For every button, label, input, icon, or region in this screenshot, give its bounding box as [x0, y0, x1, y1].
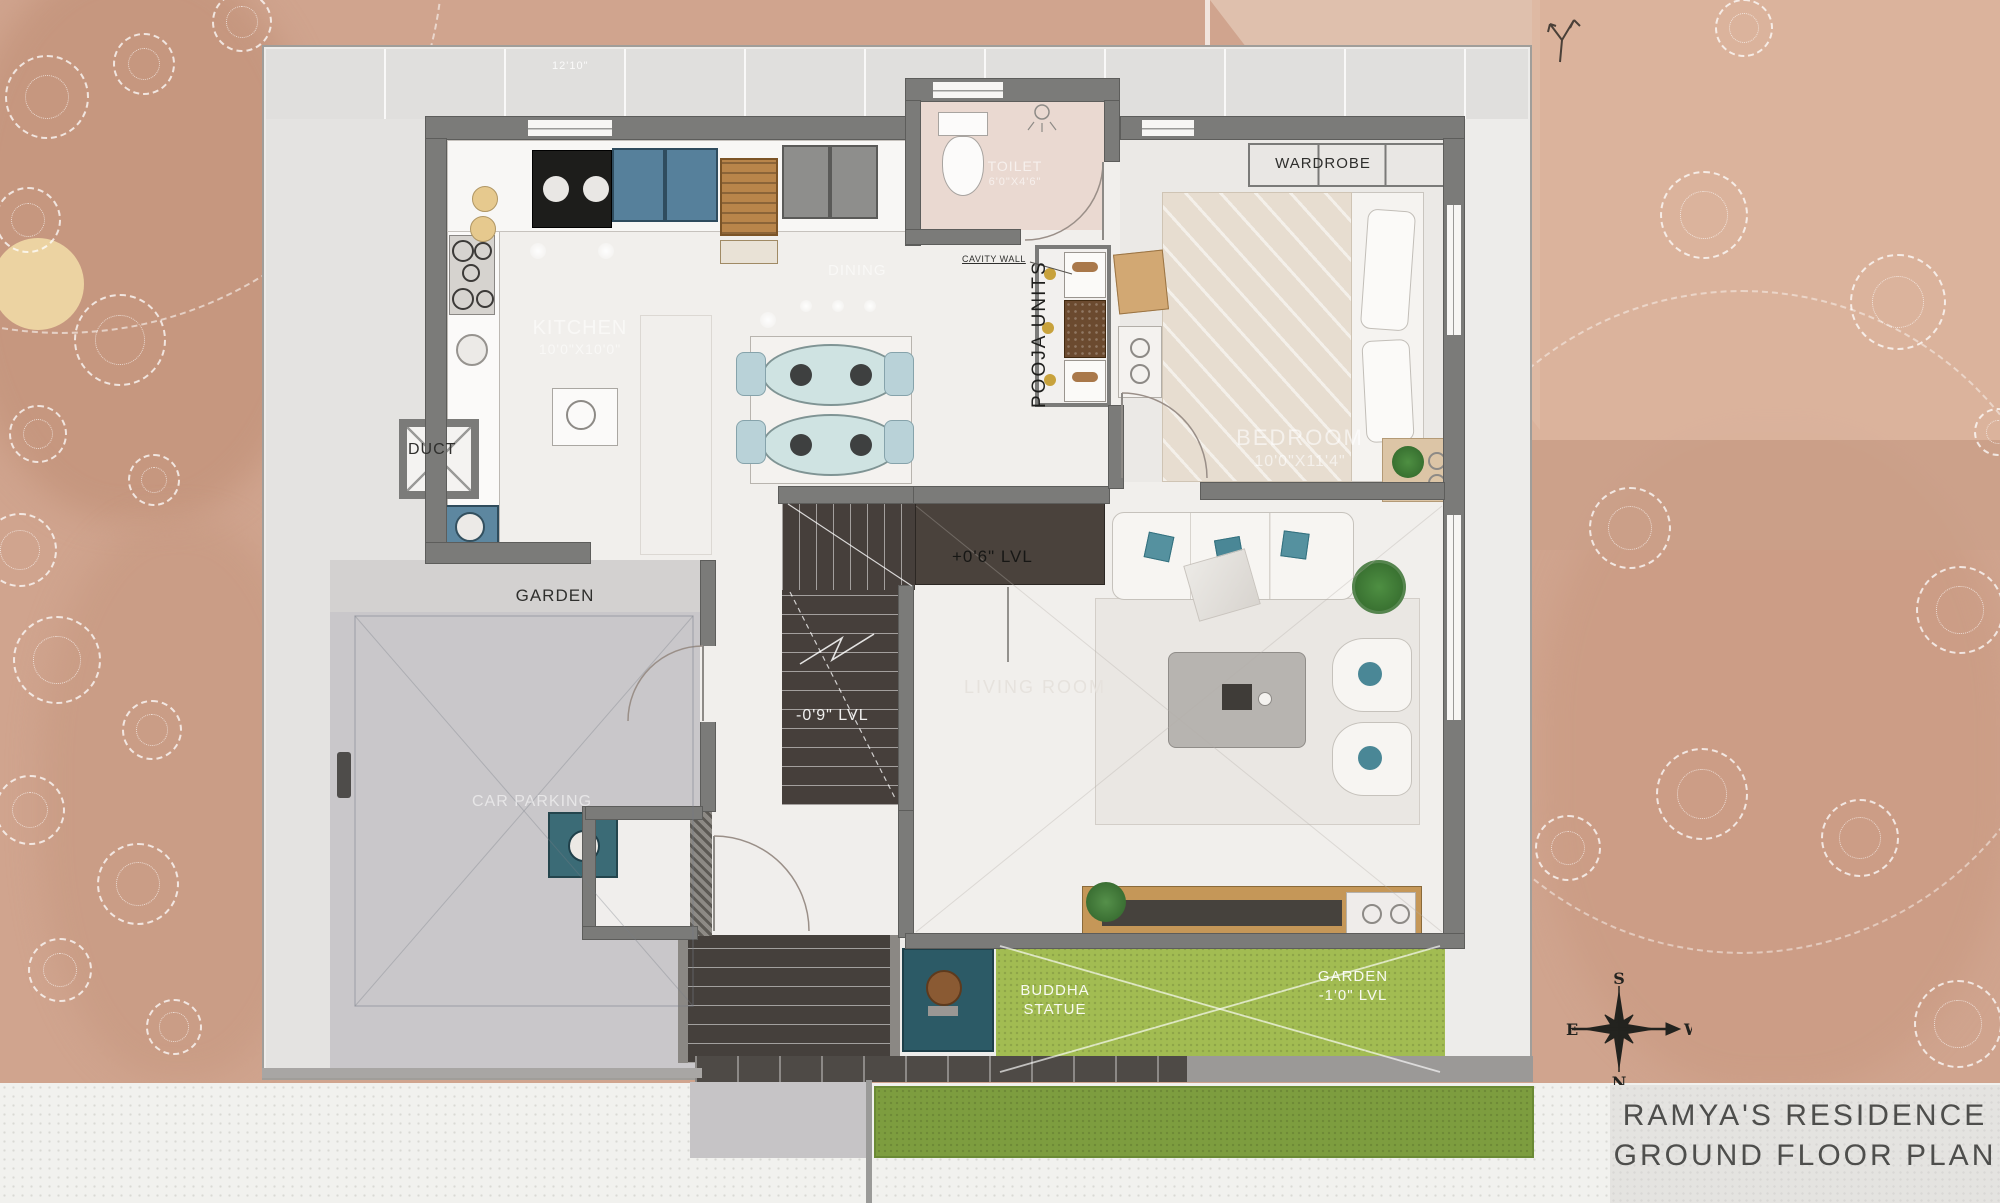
dining-chair [884, 352, 914, 396]
tree-sketch [122, 700, 182, 760]
wall-porch-south [582, 926, 698, 940]
tree-sketch [9, 405, 67, 463]
coffee-table-cup [1258, 692, 1272, 706]
stairs-landing [915, 500, 1105, 585]
stove-burner [452, 288, 474, 310]
wall-kitchen-north [425, 116, 907, 140]
compound-bottom-wall [262, 1068, 702, 1078]
pooja-side-knob [1130, 338, 1150, 358]
gate-post-line [866, 1080, 872, 1203]
tree-sketch [1589, 487, 1671, 569]
tree-sketch [13, 616, 101, 704]
wall-porch-west [582, 806, 596, 940]
kitchen-sink-round [456, 334, 488, 366]
cabinet-gray [782, 145, 878, 219]
tree-sketch [1821, 799, 1899, 877]
compass-east: E [1566, 1020, 1578, 1039]
stove-burner [476, 290, 494, 308]
window-bedroom-north [1142, 120, 1194, 136]
ceiling-light [760, 312, 776, 328]
door-gap-stair [700, 646, 716, 722]
wall-living-south [905, 933, 1465, 949]
entry-steps-rail [890, 935, 900, 1063]
console-device-knob [1390, 904, 1410, 924]
buddha-statue-label: BUDDHA STATUE [1000, 982, 1110, 1020]
tv-unit [1102, 900, 1342, 926]
toilet-dims: 6'0"X4'6" [955, 176, 1075, 190]
wall-toilet-east [1104, 100, 1120, 162]
tree-sketch [1535, 815, 1601, 881]
tree-sketch [74, 294, 166, 386]
stove-burner [474, 242, 492, 260]
level-plus-label: +0'6" LVL [952, 546, 1033, 567]
entry-steps [678, 935, 900, 1063]
kitchen-dims: 10'0"X10'0" [500, 341, 660, 359]
dining-glass-table [762, 414, 900, 476]
dining-plate [790, 364, 812, 386]
compass-south: S [1613, 972, 1625, 988]
buddha-statue [926, 970, 962, 1006]
bedroom-name: BEDROOM [1200, 424, 1400, 452]
wall-living-west [898, 585, 914, 813]
dining-plate [850, 364, 872, 386]
front-gate-band [695, 1056, 1187, 1082]
wall-foyer-east [898, 810, 914, 938]
armchair-pillow [1358, 662, 1382, 686]
pooja-side-panel [1118, 326, 1162, 398]
washer-door [455, 512, 485, 542]
shoe-rack-hatch [690, 808, 712, 936]
kitchen-decor-items [450, 158, 470, 178]
wall-toilet-west [905, 100, 921, 246]
pooja-shelf-top-handle [1072, 262, 1098, 272]
wall-kitchen-south [425, 542, 591, 564]
duct-label: DUCT [408, 440, 456, 460]
tree-sketch [1850, 254, 1946, 350]
bed-pillow [1360, 208, 1416, 331]
title-line1: RAMYA'S RESIDENCE [1610, 1099, 2000, 1133]
coffee-table-item [1222, 684, 1252, 710]
tree-sketch [1660, 171, 1748, 259]
kitchen-decor-plate [472, 186, 498, 212]
wash-basin [566, 400, 596, 430]
garden-left-label: GARDEN [500, 585, 610, 606]
entry-steps-rail [678, 935, 688, 1063]
dining-plate [850, 434, 872, 456]
toilet-label: TOILET 6'0"X4'6" [955, 158, 1075, 189]
pooja-shelf-top [1064, 252, 1106, 298]
cabinet-crate-wood [720, 158, 778, 236]
dining-chair [736, 352, 766, 396]
compass-west: W [1683, 1020, 1692, 1039]
tree-sketch [28, 938, 92, 1002]
ceiling-light [530, 243, 546, 259]
pendant-light [864, 300, 876, 312]
buddha-base [928, 1006, 958, 1016]
wall-bedroom-south [1200, 482, 1445, 500]
pooja-shelf-bottom-handle [1072, 372, 1098, 382]
wall-kitchen-west [425, 138, 447, 562]
cabinet-blue [612, 148, 718, 222]
site-white-line [1205, 0, 1210, 46]
kitchen-label: KITCHEN 10'0"X10'0" [500, 316, 660, 359]
tree-sketch [128, 454, 180, 506]
top-dimension-text: 12'10" [552, 60, 588, 74]
foyer-floor [596, 820, 898, 935]
window-east-bedroom [1447, 205, 1461, 335]
compass-rose: S W N E [1562, 972, 1692, 1092]
front-apron [690, 1082, 868, 1158]
armchair-pillow [1358, 746, 1382, 770]
tree-sketch [5, 55, 89, 139]
dining-plate [790, 434, 812, 456]
pooja-side-door-wood [1113, 250, 1169, 315]
stairs-upper-flight [782, 500, 915, 590]
pooja-side-knob [1130, 364, 1150, 384]
wall-above-stairs [778, 486, 914, 504]
floor-plan-canvas: 12'10" GARDEN CAR PARKING DUCT [0, 0, 2000, 1203]
level-minus-label: -0'9" LVL [796, 706, 869, 726]
tree-sketch [146, 999, 202, 1055]
tree-sketch [1916, 566, 2000, 654]
car-parking-label: CAR PARKING [452, 792, 612, 812]
pendant-light [832, 300, 844, 312]
stove-burner [462, 264, 480, 282]
wall-toilet-south [905, 229, 1021, 245]
sofa-pillow-teal [1144, 532, 1175, 563]
sink-basin [543, 176, 569, 202]
tree-sketch [1656, 748, 1748, 840]
tree-sketch [1914, 980, 2000, 1068]
sink-basin [583, 176, 609, 202]
ceiling-light [598, 243, 614, 259]
front-wall-band [1187, 1056, 1533, 1082]
plant-icon [1540, 12, 1584, 64]
tree-sketch [1715, 0, 1773, 57]
front-grass-strip [874, 1086, 1534, 1158]
dining-chair [736, 420, 766, 464]
console-device-knob [1362, 904, 1382, 924]
kitchen-decor-plate [470, 216, 496, 242]
bedroom-label: BEDROOM 10'0"X11'4" [1200, 424, 1400, 472]
wardrobe-label: WARDROBE [1258, 155, 1388, 174]
garden-level-label: GARDEN -1'0" LVL [1288, 968, 1418, 1006]
stairs-lower-flight [782, 590, 900, 805]
setback-top-band [266, 49, 1528, 119]
console-plant [1086, 882, 1126, 922]
stove-burner [452, 240, 474, 262]
pooja-units-label: POOJA UNITS [1028, 258, 1052, 408]
wall-pooja-south [1108, 405, 1124, 489]
gate-handle [337, 752, 351, 798]
pendant-light [800, 300, 812, 312]
dining-label: DINING [828, 262, 887, 281]
living-plant [1352, 560, 1406, 614]
dining-chair [884, 420, 914, 464]
bedroom-dims: 10'0"X11'4" [1200, 452, 1400, 472]
sofa-pillow-teal [1280, 530, 1309, 559]
tree-sketch [0, 513, 57, 587]
dining-glass-table [762, 344, 900, 406]
title-line2: GROUND FLOOR PLAN [1610, 1139, 2000, 1173]
kitchen-name: KITCHEN [500, 316, 660, 341]
window-toilet-north [933, 82, 1003, 98]
window-kitchen-north [528, 120, 612, 136]
wc-tank [938, 112, 988, 136]
tree-sketch [97, 843, 179, 925]
title-block: RAMYA'S RESIDENCE GROUND FLOOR PLAN [1610, 1085, 2000, 1203]
pooja-shelf-mid [1064, 300, 1106, 358]
wall-dining-landing [912, 486, 1110, 504]
cabinet-crate-drawers [720, 240, 778, 264]
cavity-wall-label: CAVITY WALL [962, 254, 1026, 265]
window-east-living [1447, 515, 1461, 720]
living-label: LIVING ROOM [950, 676, 1120, 699]
toilet-name: TOILET [955, 158, 1075, 176]
tree-sketch [113, 33, 175, 95]
